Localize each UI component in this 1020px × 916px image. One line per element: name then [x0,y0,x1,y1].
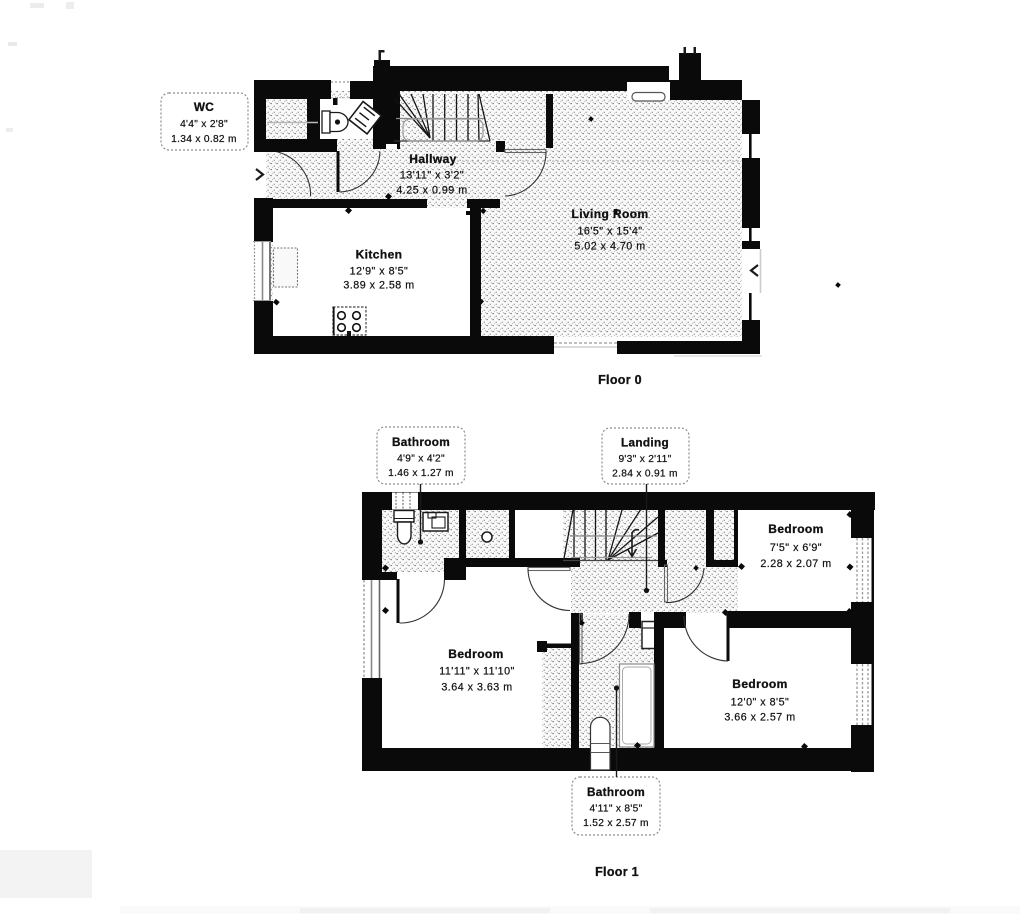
svg-text:12'9" x 8'5": 12'9" x 8'5" [350,266,409,278]
svg-text:3.64 x 3.63 m: 3.64 x 3.63 m [441,682,512,694]
svg-text:Living Room: Living Room [571,207,648,221]
svg-text:12'0" x 8'5": 12'0" x 8'5" [731,697,790,709]
svg-text:9'3" x 2'11": 9'3" x 2'11" [618,454,671,465]
svg-text:4'9" x 4'2": 4'9" x 4'2" [397,454,445,465]
svg-text:Kitchen: Kitchen [356,248,403,262]
svg-text:Floor 0: Floor 0 [598,373,642,387]
svg-text:11'11" x 11'10": 11'11" x 11'10" [439,666,515,678]
svg-text:5.02 x 4.70 m: 5.02 x 4.70 m [574,241,645,253]
svg-text:1.46 x 1.27 m: 1.46 x 1.27 m [388,468,454,479]
svg-text:4.25 x 0.99 m: 4.25 x 0.99 m [396,185,467,197]
svg-text:Bedroom: Bedroom [448,647,503,661]
svg-text:Hallway: Hallway [409,152,457,166]
svg-text:4'4" x 2'8": 4'4" x 2'8" [180,119,228,130]
svg-text:Bedroom: Bedroom [768,522,823,536]
svg-text:Floor 1: Floor 1 [595,865,639,879]
svg-text:2.28 x 2.07 m: 2.28 x 2.07 m [760,558,831,570]
svg-text:7'5" x 6'9": 7'5" x 6'9" [770,542,822,554]
svg-text:16'5" x 15'4": 16'5" x 15'4" [577,226,642,238]
svg-text:Bedroom: Bedroom [732,677,787,691]
svg-text:WC: WC [194,100,214,114]
svg-text:1.34 x 0.82 m: 1.34 x 0.82 m [171,134,237,145]
svg-text:4'11" x 8'5": 4'11" x 8'5" [589,804,642,815]
svg-text:3.66 x 2.57 m: 3.66 x 2.57 m [724,712,795,724]
svg-text:2.84 x 0.91 m: 2.84 x 0.91 m [612,469,678,480]
svg-text:13'11" x 3'2": 13'11" x 3'2" [400,170,464,182]
svg-text:Bathroom: Bathroom [392,435,450,449]
svg-text:1.52 x 2.57 m: 1.52 x 2.57 m [583,818,649,829]
svg-text:Landing: Landing [621,436,669,450]
svg-text:3.89 x 2.58 m: 3.89 x 2.58 m [343,280,414,292]
svg-text:Bathroom: Bathroom [587,785,645,799]
